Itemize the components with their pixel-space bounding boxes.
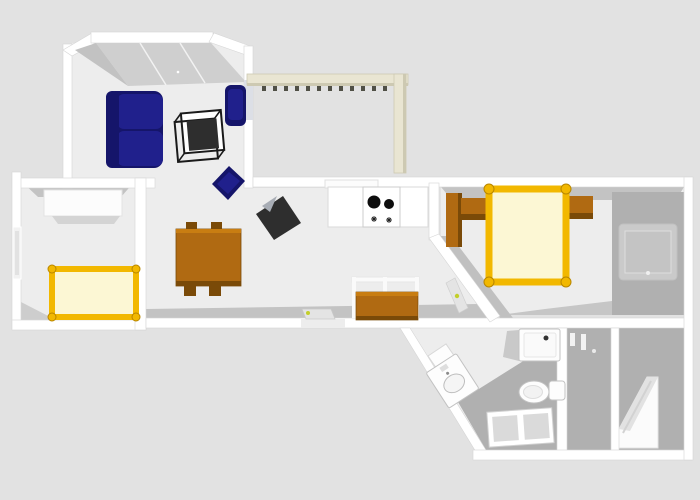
dining-table-with-chairs <box>176 222 241 296</box>
bed-post <box>48 265 56 273</box>
sofa-backrest <box>106 91 119 168</box>
living-room-west-wall <box>63 44 72 188</box>
bed-post <box>132 313 140 321</box>
armchair <box>225 85 246 126</box>
beam-vertical-edge <box>403 74 406 173</box>
sofa <box>106 91 163 168</box>
sofa-cushion <box>117 94 163 129</box>
toilet-cistern <box>549 381 565 400</box>
accessory <box>581 334 586 350</box>
double-bed-frame <box>489 189 566 282</box>
double-bed <box>484 184 571 287</box>
brown-wardrobe <box>446 193 462 247</box>
table-edge-shadow <box>176 281 241 286</box>
grate-panel <box>522 412 551 441</box>
stove-cooktop <box>363 187 400 227</box>
wardrobe-body <box>44 190 122 216</box>
bed-post <box>484 277 494 287</box>
bed-post <box>484 184 494 194</box>
bed-post <box>48 313 56 321</box>
nightstand-left <box>461 198 488 220</box>
sofa-cushion <box>117 131 163 166</box>
bedroom-door-handle <box>455 294 459 298</box>
floor-plan-svg <box>0 0 700 500</box>
band-south-wall <box>146 318 692 328</box>
bedroom-window-east <box>619 224 677 280</box>
sideboard <box>356 292 418 320</box>
south-outer-wall <box>473 450 692 460</box>
niche-east-divider-wall <box>611 328 619 452</box>
armchair-cushion <box>228 89 243 120</box>
window-glass <box>15 231 19 275</box>
single-bed-frame <box>52 269 136 317</box>
east-outer-wall <box>684 177 693 460</box>
window-mullion <box>352 277 356 318</box>
grate-panel <box>491 414 520 443</box>
wardrobe-shadow <box>52 216 120 224</box>
pergola-dentils <box>262 86 387 91</box>
band-north-wall-east <box>253 177 692 187</box>
bed-post <box>561 277 571 287</box>
sideboard-top <box>356 292 418 296</box>
toilet-seat <box>524 386 543 399</box>
dormer-north-wall <box>91 32 213 43</box>
entrance-door-handle <box>306 311 310 315</box>
bed-post <box>561 184 571 194</box>
shower-tray <box>503 329 560 361</box>
table-edge-highlight <box>176 229 241 233</box>
white-wardrobe <box>44 190 122 224</box>
slab-dot <box>177 71 180 74</box>
niche-floor <box>567 328 611 450</box>
single-bed <box>48 265 140 321</box>
window-west <box>13 227 21 279</box>
burner <box>368 196 381 209</box>
entrance-door-gap <box>301 319 345 328</box>
sideboard-body <box>356 292 418 320</box>
balcony-pergola <box>247 74 408 173</box>
band-north-wall-west <box>12 178 155 188</box>
sideboard-base <box>356 316 418 320</box>
floor-grate <box>487 408 554 447</box>
towel-rail <box>570 333 575 346</box>
bed-post <box>132 265 140 273</box>
kitchen-counter <box>325 180 428 227</box>
coffee-table-inset <box>187 118 220 151</box>
window-glass <box>625 231 671 273</box>
window-handle <box>646 271 650 275</box>
chair <box>209 285 221 296</box>
accessory-dot <box>592 349 596 353</box>
shower-drain <box>544 336 549 341</box>
shower-tray-inner <box>524 333 556 357</box>
floor-plan-canvas <box>0 0 700 500</box>
beam-horizontal-edge <box>247 83 408 86</box>
toilet <box>519 381 565 403</box>
nightstand-front <box>461 214 488 220</box>
dining-table-top <box>176 229 241 286</box>
burner <box>384 199 394 209</box>
bedroom-small-south-wall <box>12 320 146 330</box>
bedroom-large-west-wall-stub <box>429 183 439 240</box>
chair <box>184 285 196 296</box>
